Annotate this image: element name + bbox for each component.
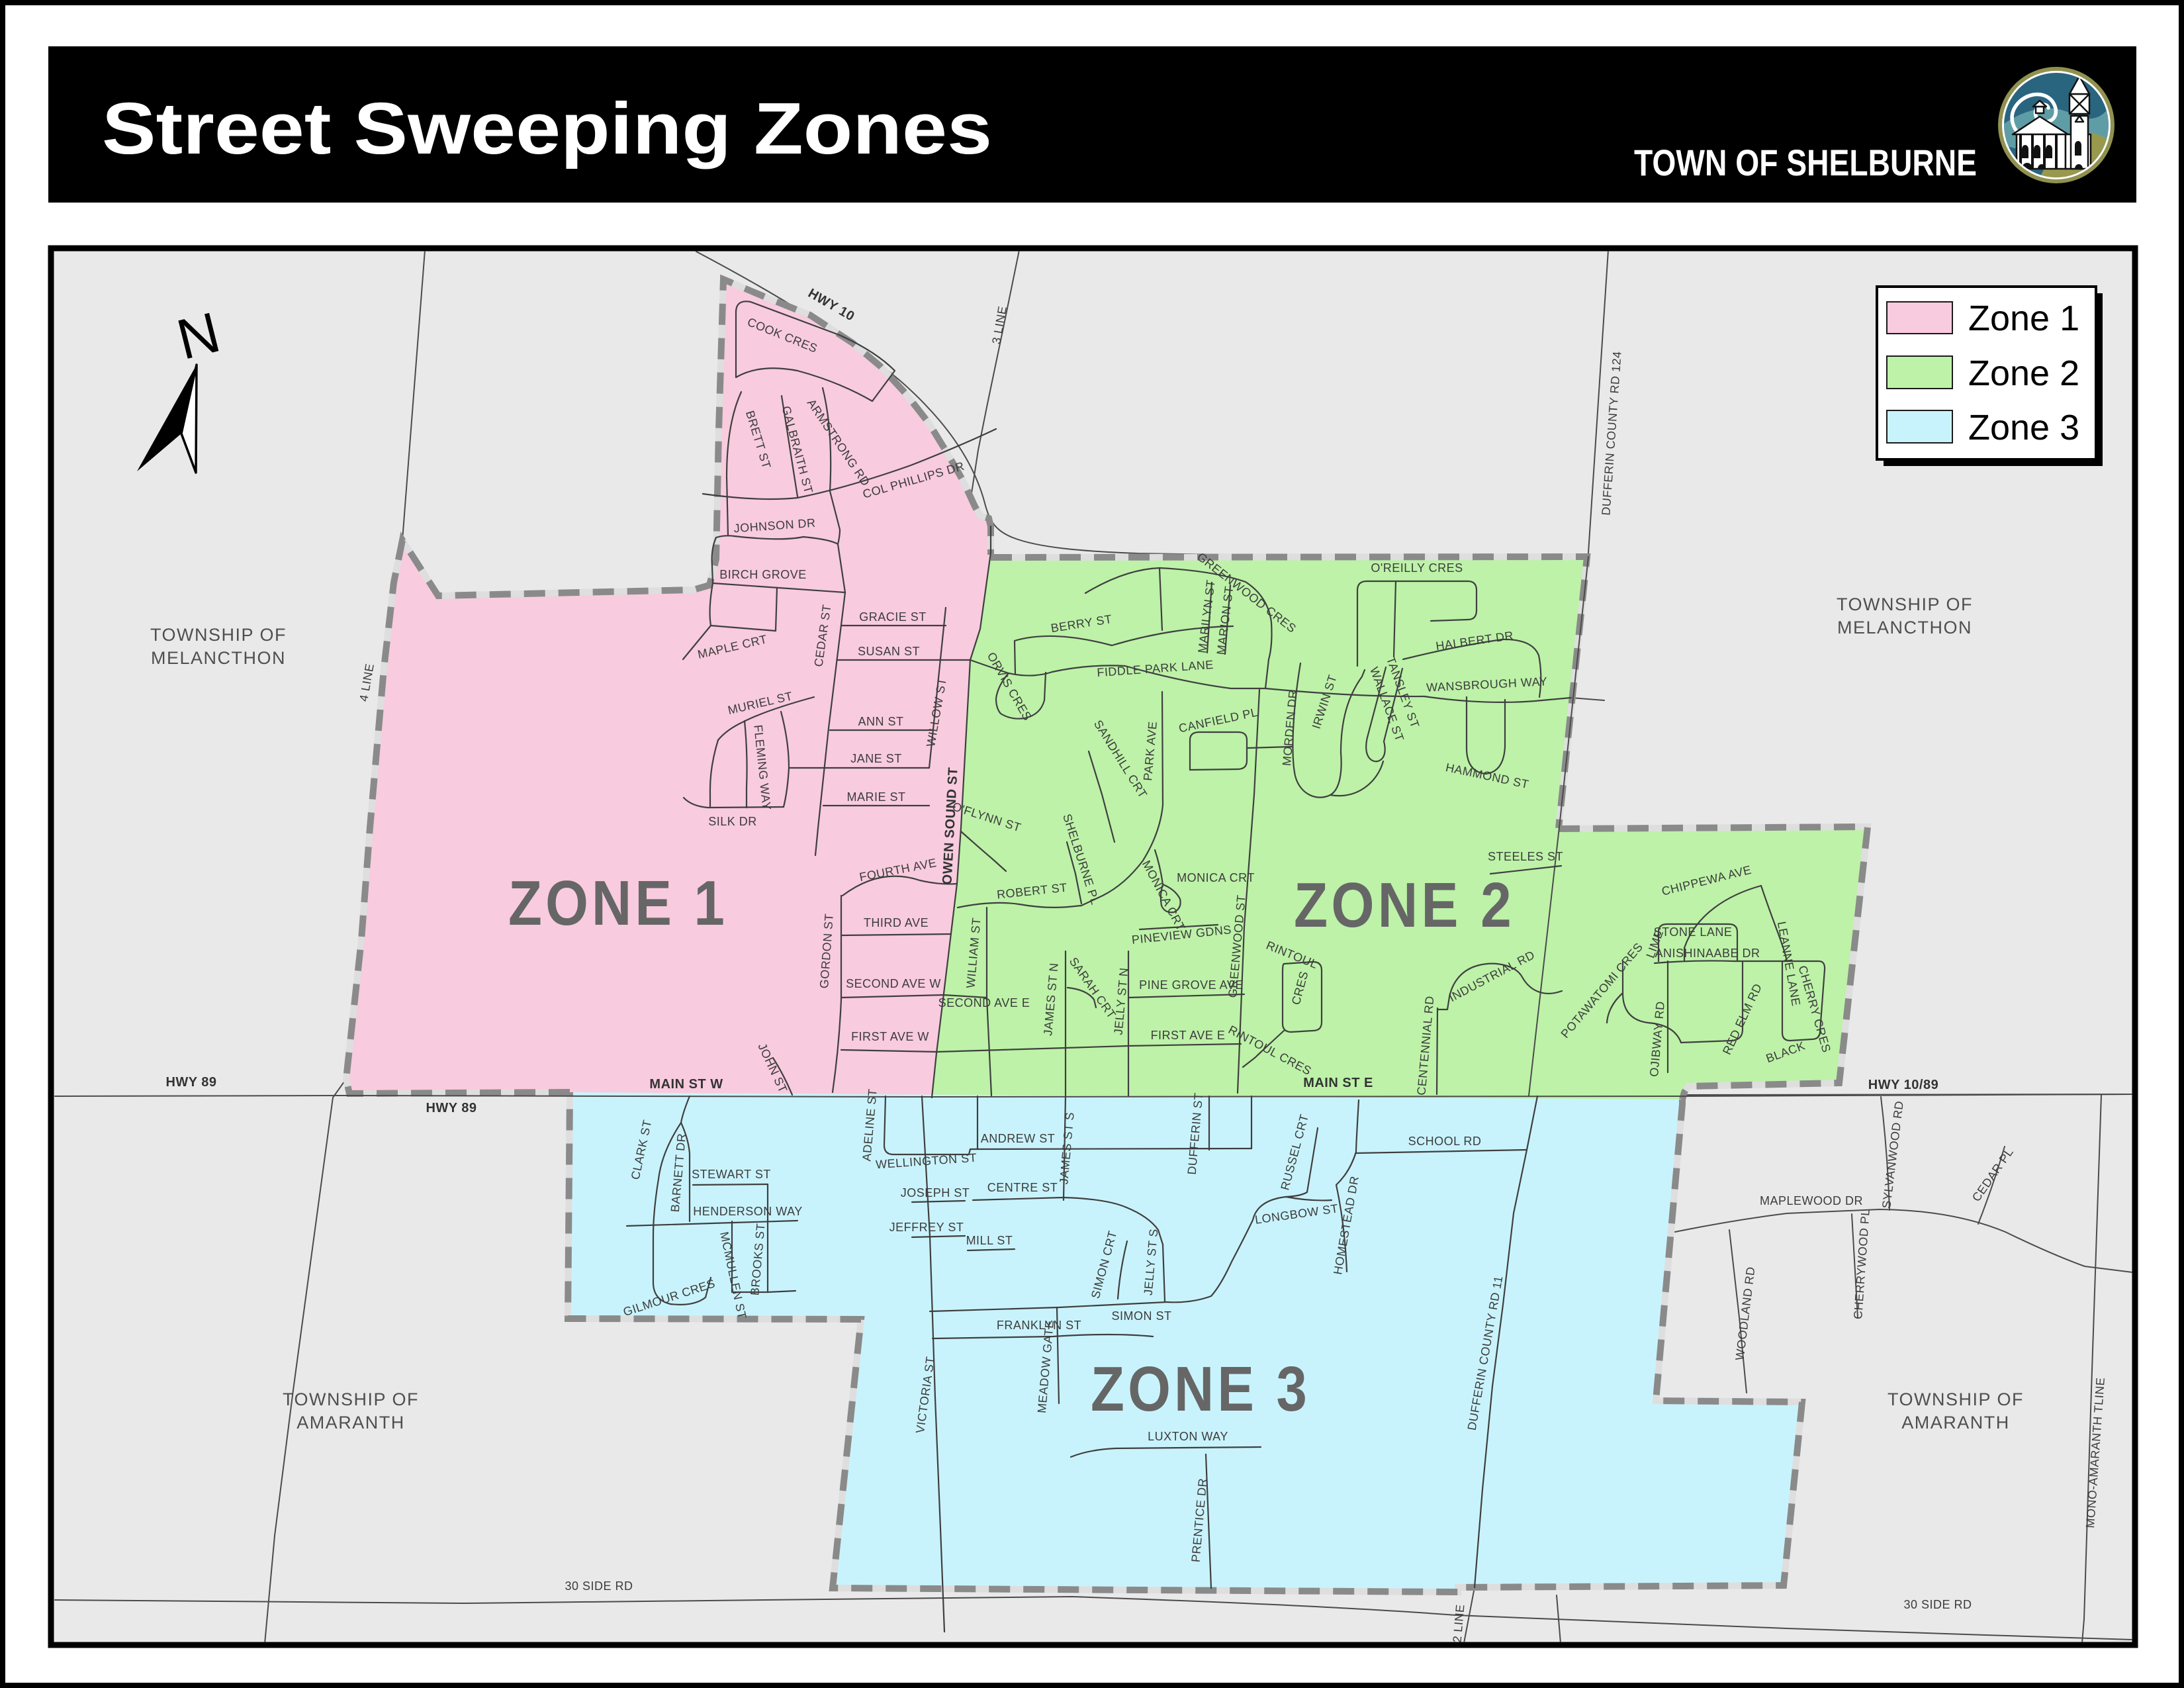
svg-text:AMARANTH: AMARANTH <box>1901 1413 2010 1432</box>
svg-text:SECOND AVE E: SECOND AVE E <box>938 996 1030 1009</box>
svg-text:ZONE 1: ZONE 1 <box>508 868 728 939</box>
svg-text:MELANCTHON: MELANCTHON <box>1837 618 1972 637</box>
svg-text:HWY 89: HWY 89 <box>165 1075 216 1090</box>
svg-text:30 SIDE RD: 30 SIDE RD <box>1903 1598 1972 1611</box>
svg-text:HENDERSON WAY: HENDERSON WAY <box>693 1205 803 1218</box>
svg-text:FRANKLYN ST: FRANKLYN ST <box>997 1319 1081 1332</box>
svg-text:JEFFREY ST: JEFFREY ST <box>889 1221 964 1234</box>
svg-text:ZONE 3: ZONE 3 <box>1091 1354 1310 1425</box>
svg-text:MELANCTHON: MELANCTHON <box>151 648 286 668</box>
svg-text:SUSAN ST: SUSAN ST <box>858 645 920 658</box>
svg-text:HWY 89: HWY 89 <box>426 1101 477 1115</box>
svg-text:30 SIDE RD: 30 SIDE RD <box>565 1579 633 1593</box>
svg-text:LUXTON WAY: LUXTON WAY <box>1148 1430 1228 1443</box>
svg-text:ANN ST: ANN ST <box>858 715 903 728</box>
svg-text:ZONE 2: ZONE 2 <box>1294 870 1515 941</box>
svg-text:SIMON ST: SIMON ST <box>1111 1309 1171 1323</box>
svg-text:AMARANTH: AMARANTH <box>296 1413 405 1432</box>
svg-text:GRACIE ST: GRACIE ST <box>859 610 927 624</box>
svg-text:FIRST AVE W: FIRST AVE W <box>851 1030 929 1043</box>
svg-text:TOWNSHIP OF: TOWNSHIP OF <box>150 625 287 645</box>
svg-text:O'REILLY CRES: O'REILLY CRES <box>1371 561 1463 575</box>
svg-text:TOWNSHIP OF: TOWNSHIP OF <box>1837 594 1973 614</box>
svg-text:ANDREW ST: ANDREW ST <box>981 1132 1056 1145</box>
svg-text:STONE LANE: STONE LANE <box>1654 925 1733 939</box>
svg-text:TOWNSHIP OF: TOWNSHIP OF <box>283 1389 419 1409</box>
svg-text:MAIN ST W: MAIN ST W <box>649 1077 723 1092</box>
svg-text:SCHOOL RD: SCHOOL RD <box>1408 1135 1482 1148</box>
svg-text:THIRD AVE: THIRD AVE <box>864 916 929 929</box>
svg-text:FIRST AVE E: FIRST AVE E <box>1151 1029 1226 1042</box>
svg-text:TOWNSHIP OF: TOWNSHIP OF <box>1888 1389 2024 1409</box>
svg-text:TOWN OF SHELBURNE: TOWN OF SHELBURNE <box>1634 142 1977 183</box>
svg-text:MONICA CRT: MONICA CRT <box>1177 871 1255 884</box>
svg-text:JANE ST: JANE ST <box>850 752 902 765</box>
svg-text:JOSEPH ST: JOSEPH ST <box>901 1186 970 1199</box>
svg-text:STEWART ST: STEWART ST <box>692 1168 771 1181</box>
svg-text:MAPLEWOOD DR: MAPLEWOOD DR <box>1760 1194 1863 1207</box>
svg-text:CENTRE ST: CENTRE ST <box>987 1181 1058 1194</box>
svg-text:ANISHINAABE DR: ANISHINAABE DR <box>1655 947 1760 960</box>
svg-text:BIRCH GROVE: BIRCH GROVE <box>719 568 807 581</box>
svg-text:MILL ST: MILL ST <box>966 1234 1013 1247</box>
svg-text:STEELES ST: STEELES ST <box>1488 850 1563 863</box>
svg-text:Zone 2: Zone 2 <box>1968 353 2079 393</box>
svg-text:MARIE ST: MARIE ST <box>846 790 905 804</box>
svg-text:Zone 1: Zone 1 <box>1968 299 2079 338</box>
svg-text:SECOND AVE W: SECOND AVE W <box>846 977 941 990</box>
svg-text:MAIN ST E: MAIN ST E <box>1303 1076 1373 1090</box>
svg-text:HWY 10/89: HWY 10/89 <box>1868 1078 1938 1092</box>
svg-text:SILK DR: SILK DR <box>708 815 757 828</box>
svg-text:Zone 3: Zone 3 <box>1968 408 2079 447</box>
svg-text:PINE GROVE AVE: PINE GROVE AVE <box>1139 978 1244 992</box>
svg-text:Street Sweeping Zones: Street Sweeping Zones <box>102 88 992 169</box>
